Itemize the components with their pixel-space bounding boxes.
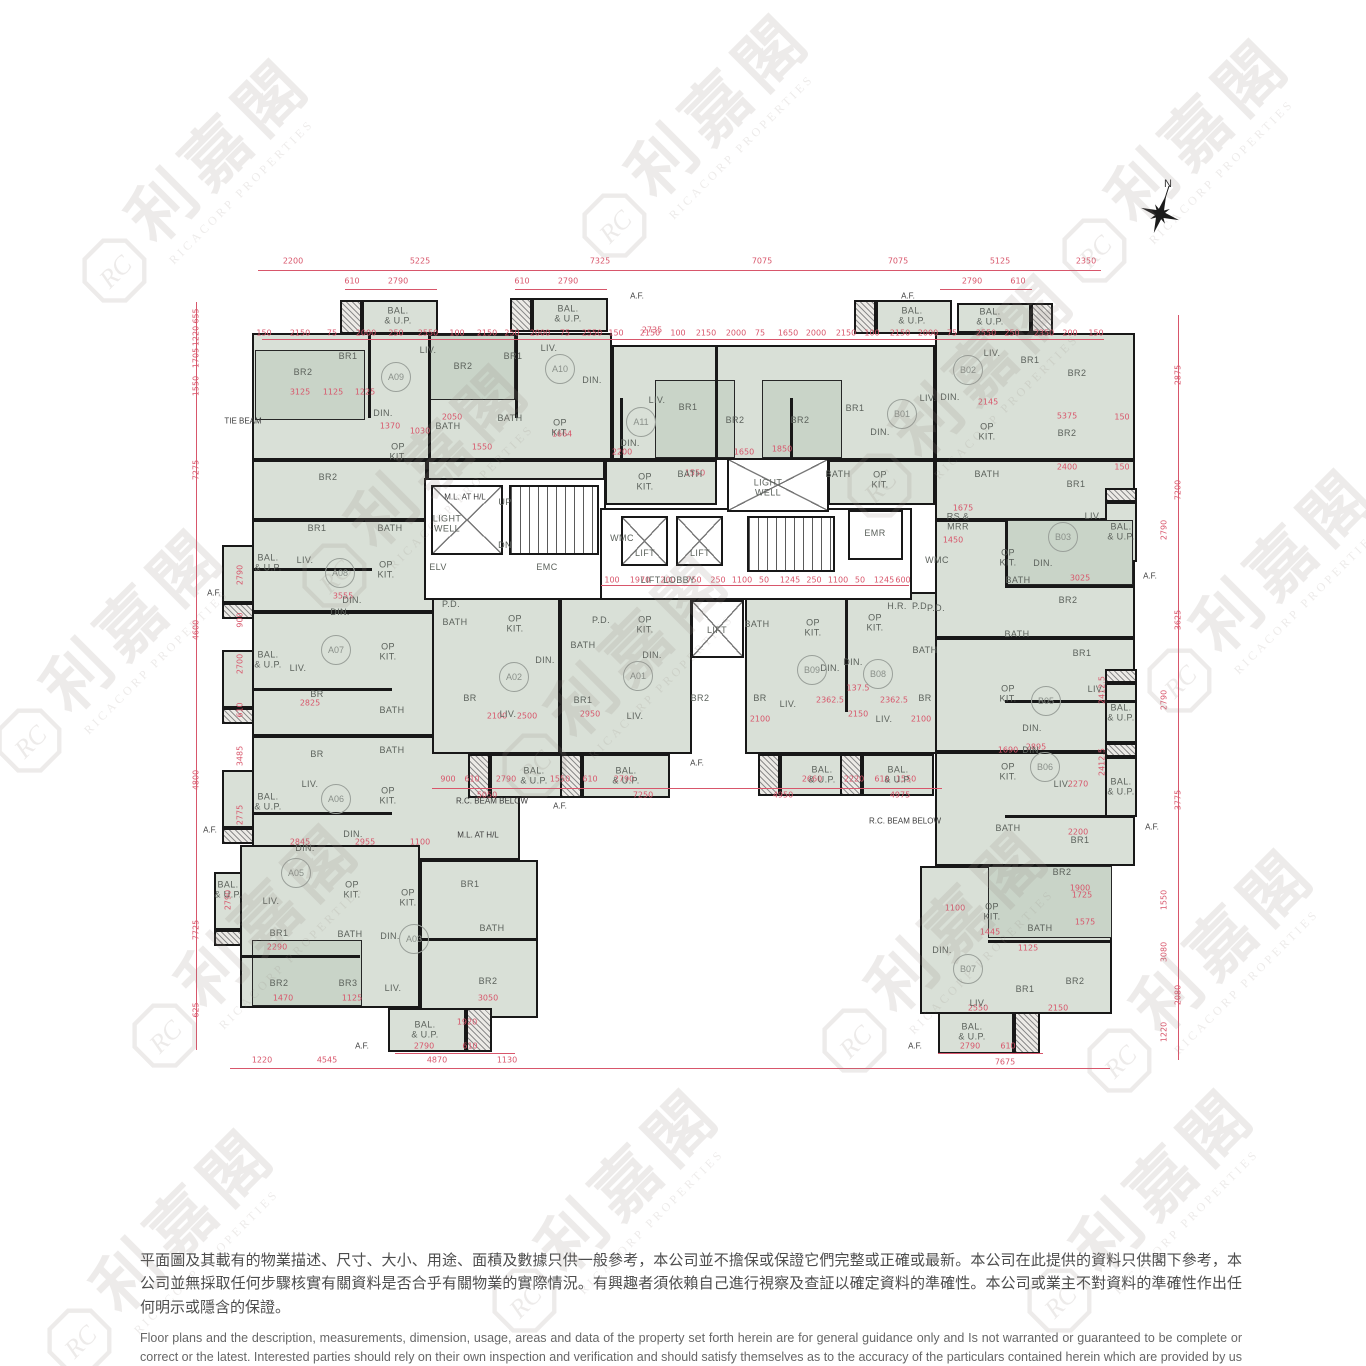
- room-label: EMC: [536, 562, 557, 572]
- room-label: BR2: [454, 361, 473, 371]
- dimension-text: 610: [514, 277, 529, 286]
- room-label: BR: [463, 693, 476, 703]
- dimension-text: 2100: [911, 715, 931, 724]
- dimension-text: 7675: [995, 1058, 1015, 1067]
- dimension-text: 610: [344, 277, 359, 286]
- core-area: [676, 516, 723, 566]
- dimension-text: 1900: [1070, 884, 1090, 893]
- wall-segment: [420, 938, 538, 941]
- room-label: OP KIT.: [999, 684, 1016, 705]
- room-label: LIFT: [690, 548, 710, 558]
- dimension-text: 150: [608, 329, 623, 338]
- dimension-text: 610: [582, 775, 597, 784]
- dimension-text: 625: [192, 1002, 201, 1017]
- room-label: DIN.: [1022, 723, 1042, 733]
- wall-segment: [845, 592, 848, 712]
- room-label: BAL. & U.P.: [958, 1022, 985, 1043]
- room-label: BR1: [1021, 355, 1040, 365]
- room-label: BR: [753, 693, 766, 703]
- room-label: DN: [498, 540, 512, 550]
- dimension-text: 1550: [1160, 890, 1169, 910]
- dimension-text: 610: [464, 775, 479, 784]
- room-label: BATH: [826, 469, 851, 479]
- room-label: BATH: [678, 469, 703, 479]
- room-label: BATH: [378, 523, 403, 533]
- unit-number-label: A06: [321, 784, 351, 814]
- room-block: [430, 335, 515, 400]
- room-label: WMC: [610, 533, 634, 543]
- room-label: EMR: [864, 528, 885, 538]
- room-label: DIN.: [535, 655, 555, 665]
- annotation-label: A.F.: [690, 759, 704, 768]
- balcony-hatch: [214, 930, 242, 946]
- dimension-text: 137.5: [847, 684, 870, 693]
- annotation-label: M.L. AT H/L: [444, 493, 486, 502]
- room-label: BR2: [319, 472, 338, 482]
- annotation-label: A.F.: [901, 292, 915, 301]
- unit-number-label: B08: [863, 659, 893, 689]
- dimension-text: 610: [236, 702, 245, 717]
- unit-number-label: A09: [381, 362, 411, 392]
- room-label: BR2: [726, 415, 745, 425]
- room-label: BR1: [504, 351, 523, 361]
- dimension-text: 250: [806, 576, 821, 585]
- dimension-text: 75: [560, 329, 570, 338]
- dimension-text: 7075: [752, 257, 772, 266]
- dimension-text: 3025: [1070, 574, 1090, 583]
- annotation-label: A.F.: [1143, 572, 1157, 581]
- room-label: OP KIT.: [804, 618, 821, 639]
- dimension-text: 1650: [778, 329, 798, 338]
- dimension-text: 3775: [1174, 790, 1183, 810]
- dimension-text: 2950: [580, 710, 600, 719]
- dimension-text: 2790: [962, 277, 982, 286]
- annotation-label: A.F.: [908, 1042, 922, 1051]
- balcony-hatch: [1105, 488, 1137, 502]
- dimension-line: [262, 339, 1104, 340]
- dimension-text: 2150: [696, 329, 716, 338]
- dimension-text: 4950: [773, 791, 793, 800]
- dimension-text: 5375: [1057, 412, 1077, 421]
- room-label: BAL. & U.P.: [884, 765, 911, 786]
- room-label: LIV.: [984, 348, 1001, 358]
- dimension-text: 2000: [530, 329, 550, 338]
- dimension-text: 1245: [780, 576, 800, 585]
- unit-number-label: B05: [1031, 686, 1061, 716]
- dimension-text: 2145: [978, 398, 998, 407]
- dimension-text: 2700: [236, 654, 245, 674]
- room-label: LIFT LOBBY: [641, 575, 696, 585]
- wall-segment: [988, 940, 1112, 943]
- room-label: BR1: [679, 402, 698, 412]
- dimension-line: [345, 289, 437, 290]
- room-label: P.D.: [442, 599, 460, 609]
- dimension-text: 3050: [478, 994, 498, 1003]
- room-label: LIV.: [263, 896, 280, 906]
- dimension-text: 2790: [388, 277, 408, 286]
- dimension-text: 2550: [582, 329, 602, 338]
- room-label: BATH: [996, 823, 1021, 833]
- dimension-text: 1225: [355, 388, 375, 397]
- north-arrow: N: [1136, 178, 1196, 248]
- room-label: LIV.: [1088, 684, 1105, 694]
- room-label: BATH: [745, 619, 770, 629]
- dimension-text: 2875: [1174, 365, 1183, 385]
- dimension-text: 2790: [414, 1042, 434, 1051]
- room-label: DIN.: [380, 931, 400, 941]
- room-label: DIN.: [295, 843, 315, 853]
- room-label: BATH: [913, 645, 938, 655]
- room-label: BR2: [1068, 368, 1087, 378]
- room-label: LIFT: [707, 625, 727, 635]
- dimension-text: 2220: [844, 775, 864, 784]
- annotation-label: A.F.: [630, 292, 644, 301]
- dimension-text: 1220: [252, 1056, 272, 1065]
- dimension-line: [258, 270, 1101, 271]
- dimension-text: 75: [327, 329, 337, 338]
- unit-number-label: B09: [797, 655, 827, 685]
- room-label: DIN.: [582, 375, 602, 385]
- room-label: BR1: [1073, 648, 1092, 658]
- dimension-text: 100: [670, 329, 685, 338]
- dimension-text: 4545: [317, 1056, 337, 1065]
- dimension-text: 1850: [772, 445, 792, 454]
- room-label: BAL. & U.P.: [214, 880, 241, 901]
- dimension-text: 1690: [998, 746, 1018, 755]
- dimension-text: 2790: [496, 775, 516, 784]
- room-label: BR1: [308, 523, 327, 533]
- dimension-line: [515, 289, 607, 290]
- room-label: UP: [498, 497, 511, 507]
- room-label: DIN.: [870, 427, 890, 437]
- room-label: BAL. & U.P.: [384, 306, 411, 327]
- room-label: BATH: [443, 617, 468, 627]
- annotation-label: TIE BEAM: [224, 417, 261, 426]
- dimension-text: 2790: [236, 565, 245, 585]
- room-label: BAL. & U.P.: [254, 650, 281, 671]
- room-label: LIV.: [302, 779, 319, 789]
- balcony-hatch: [1105, 743, 1137, 757]
- wall-segment: [1005, 585, 1135, 588]
- room-label: BATH: [436, 421, 461, 431]
- dimension-text: 250: [710, 576, 725, 585]
- room-label: BR2: [1053, 867, 1072, 877]
- room-label: BAL. & U.P.: [554, 304, 581, 325]
- room-label: BR2: [270, 978, 289, 988]
- dimension-text: 1575: [1075, 918, 1095, 927]
- room-label: WMC: [925, 555, 949, 565]
- dimension-text: 900: [440, 775, 455, 784]
- dimension-text: 5125: [990, 257, 1010, 266]
- wall-segment: [368, 333, 371, 418]
- dimension-text: 1445: [980, 928, 1000, 937]
- dimension-text: 4600: [192, 620, 201, 640]
- room-label: DIN.: [940, 392, 960, 402]
- dimension-text: 1100: [732, 576, 752, 585]
- room-label: OP KIT.: [999, 762, 1016, 783]
- unit-number-label: B02: [953, 355, 983, 385]
- dimension-text: 50: [759, 576, 769, 585]
- dimension-text: 2000: [918, 329, 938, 338]
- dimension-text: 1100: [410, 838, 430, 847]
- dimension-text: 1920: [457, 1018, 477, 1027]
- balcony-hatch: [1105, 669, 1137, 683]
- room-label: BATH: [1006, 575, 1031, 585]
- room-block: [745, 592, 942, 754]
- dimension-text: 3125: [290, 388, 310, 397]
- dimension-text: 150: [256, 329, 271, 338]
- dimension-text: 2775: [236, 805, 245, 825]
- dimension-text: 1450: [943, 536, 963, 545]
- dimension-text: 4800: [192, 770, 201, 790]
- dimension-text: 1370: [380, 422, 400, 431]
- dimension-text: 1470: [273, 994, 293, 1003]
- balcony-hatch: [222, 828, 254, 844]
- dimension-text: 3080: [1160, 942, 1169, 962]
- unit-number-label: A01: [623, 661, 653, 691]
- room-label: BR1: [1016, 984, 1035, 994]
- dimension-text: 50: [855, 576, 865, 585]
- room-label: LIV.: [1054, 779, 1071, 789]
- room-label: LIV.: [1085, 511, 1102, 521]
- room-label: H.R.: [887, 601, 907, 611]
- dimension-line: [938, 1053, 1043, 1054]
- room-label: BAL. & U.P.: [808, 765, 835, 786]
- room-label: OP KIT.: [999, 548, 1016, 569]
- dimension-text: 2290: [267, 943, 287, 952]
- room-label: OP KIT.: [506, 614, 523, 635]
- dimension-text: 150: [1114, 463, 1129, 472]
- room-label: LIGHT WELL: [754, 478, 783, 499]
- room-label: BAL. & U.P.: [976, 307, 1003, 328]
- dimension-text: 1650: [734, 448, 754, 457]
- room-label: BAL. & U.P.: [1107, 777, 1134, 798]
- dimension-text: 2150: [477, 329, 497, 338]
- room-label: BR2: [1058, 428, 1077, 438]
- room-label: DIN.: [343, 829, 363, 839]
- room-label: BR1: [461, 879, 480, 889]
- room-label: RS & MRR: [947, 512, 970, 533]
- room-label: OP KIT.: [343, 880, 360, 901]
- dimension-text: 2150: [640, 329, 660, 338]
- room-label: BR2: [479, 976, 498, 986]
- dimension-text: 1245: [874, 576, 894, 585]
- room-label: OP KIT.: [636, 472, 653, 493]
- dimension-line: [1178, 315, 1179, 1060]
- unit-number-label: A11: [626, 407, 656, 437]
- dimension-text: 2412.5: [1098, 748, 1107, 776]
- dimension-text: 2100: [750, 715, 770, 724]
- room-label: BATH: [975, 469, 1000, 479]
- dimension-text: 5225: [410, 257, 430, 266]
- room-block: [655, 380, 735, 458]
- dimension-text: 3485: [236, 746, 245, 766]
- dimension-text: 610: [1010, 277, 1025, 286]
- room-label: LIV.: [920, 393, 937, 403]
- room-label: BR: [310, 689, 323, 699]
- room-label: LIV.: [970, 998, 987, 1008]
- room-label: BAL. & U.P.: [254, 792, 281, 813]
- room-label: DIN.: [932, 945, 952, 955]
- unit-number-label: B01: [887, 399, 917, 429]
- dimension-text: 75: [755, 329, 765, 338]
- annotation-label: M.L. AT H/L: [457, 831, 499, 840]
- room-label: BAL. & U.P.: [612, 766, 639, 787]
- unit-number-label: A03: [399, 924, 429, 954]
- room-label: BR2: [791, 415, 810, 425]
- dimension-text: 1550: [550, 775, 570, 784]
- dimension-text: 2150: [836, 329, 856, 338]
- wall-segment: [515, 333, 518, 418]
- disclaimer-chinese: 平面圖及其載有的物業描述、尺寸、大小、用途、面積及數據只供一般參考，本公司並不擔…: [140, 1249, 1242, 1319]
- dimension-text: 2350: [1076, 257, 1096, 266]
- room-label: LIV.: [420, 345, 437, 355]
- unit-number-label: B07: [953, 954, 983, 984]
- dimension-text: 2000: [356, 329, 376, 338]
- dimension-text: 2790: [1160, 520, 1169, 540]
- room-label: LIV.: [290, 663, 307, 673]
- room-label: OP KIT.: [871, 470, 888, 491]
- dimension-text: 600: [895, 576, 910, 585]
- dimension-text: 2200: [612, 448, 632, 457]
- wall-segment: [240, 955, 360, 958]
- dimension-text: 2080: [1174, 985, 1183, 1005]
- room-label: LIV.: [297, 555, 314, 565]
- room-block: [252, 460, 427, 520]
- room-block: [935, 333, 1135, 460]
- room-label: ELV: [429, 562, 447, 572]
- room-label: BATH: [1005, 629, 1030, 639]
- dimension-text: 7725: [192, 920, 201, 940]
- dimension-text: 1100: [828, 576, 848, 585]
- room-label: BR2: [294, 367, 313, 377]
- room-label: LIV.: [385, 983, 402, 993]
- dimension-text: 3625: [1174, 610, 1183, 630]
- room-label: OP KIT.: [978, 422, 995, 443]
- room-label: BR2: [691, 693, 710, 703]
- room-label: BATH: [571, 640, 596, 650]
- room-label: DIN.: [342, 595, 362, 605]
- dimension-text: 2790: [960, 1042, 980, 1051]
- room-label: OP KIT.: [379, 786, 396, 807]
- room-label: BATH: [380, 705, 405, 715]
- disclaimer: 平面圖及其載有的物業描述、尺寸、大小、用途、面積及數據只供一般參考，本公司並不擔…: [140, 1249, 1242, 1366]
- room-label: BR2: [1059, 595, 1078, 605]
- dimension-text: 100: [449, 329, 464, 338]
- dimension-text: 1705: [192, 348, 201, 368]
- dimension-line: [395, 1053, 515, 1054]
- dimension-text: 7250: [633, 791, 653, 800]
- room-label: BR: [918, 693, 931, 703]
- dimension-text: 1100: [945, 904, 965, 913]
- room-label: BR1: [339, 351, 358, 361]
- dimension-text: 1030: [410, 427, 430, 436]
- dimension-text: 250: [388, 329, 403, 338]
- unit-number-label: B06: [1030, 752, 1060, 782]
- core-area: [509, 485, 599, 555]
- dimension-text: 900: [236, 612, 245, 627]
- unit-number-label: A10: [545, 354, 575, 384]
- room-label: BAL. & U.P.: [254, 553, 281, 574]
- room-label: OP KIT.: [377, 560, 394, 581]
- dimension-text: 1220: [192, 326, 201, 346]
- dimension-text: 2000: [726, 329, 746, 338]
- room-label: DIN.: [330, 607, 350, 617]
- room-label: LIFT: [635, 548, 655, 558]
- room-label: DIN.: [620, 438, 640, 448]
- dimension-text: 1550: [472, 443, 492, 452]
- dimension-text: 2362.5: [816, 696, 844, 705]
- dimension-text: 2200: [283, 257, 303, 266]
- dimension-text: 2500: [517, 712, 537, 721]
- room-label: DIN.: [843, 657, 863, 667]
- wall-segment: [1005, 815, 1135, 818]
- dimension-text: 2150: [890, 329, 910, 338]
- room-label: BR3: [339, 978, 358, 988]
- room-label: BAL. & U.P.: [520, 766, 547, 787]
- dimension-text: 250: [1004, 329, 1019, 338]
- room-label: P.D.: [592, 615, 610, 625]
- annotation-label: A.F.: [355, 1042, 369, 1051]
- dimension-text: 1130: [497, 1056, 517, 1065]
- room-label: BATH: [498, 413, 523, 423]
- room-label: BATH: [380, 745, 405, 755]
- unit-number-label: A08: [325, 558, 355, 588]
- dimension-text: 150: [1088, 329, 1103, 338]
- room-label: BAL. & U.P.: [1107, 703, 1134, 724]
- dimension-text: 4975: [890, 791, 910, 800]
- annotation-label: A.F.: [553, 802, 567, 811]
- room-block: [605, 460, 717, 505]
- dimension-text: 7075: [888, 257, 908, 266]
- annotation-label: R.C. BEAM BELOW: [869, 817, 941, 826]
- dimension-text: 2350: [1034, 329, 1054, 338]
- dimension-text: 2550: [976, 329, 996, 338]
- dimension-text: 7275: [192, 460, 201, 480]
- floor-plan-page: 2200522573257075707551252350610279061027…: [0, 0, 1366, 1366]
- annotation-label: A.F.: [1145, 823, 1159, 832]
- dimension-text: 1125: [342, 994, 362, 1003]
- dimension-text: 200: [1062, 329, 1077, 338]
- room-label: LIV.: [876, 714, 893, 724]
- room-label: BAL. & U.P.: [411, 1020, 438, 1041]
- disclaimer-english: Floor plans and the description, measure…: [140, 1329, 1242, 1366]
- annotation-label: A.F.: [203, 826, 217, 835]
- dimension-text: 1550: [192, 376, 201, 396]
- dimension-text: 1125: [323, 388, 343, 397]
- dimension-text: 2362.5: [880, 696, 908, 705]
- unit-number-label: A07: [321, 635, 351, 665]
- room-label: BR1: [574, 695, 593, 705]
- room-label: BATH: [480, 923, 505, 933]
- room-label: BATH: [1028, 923, 1053, 933]
- dimension-text: 2790: [558, 277, 578, 286]
- room-label: BR1: [270, 928, 289, 938]
- dimension-text: 2000: [806, 329, 826, 338]
- room-label: LIV.: [500, 709, 517, 719]
- dimension-text: 150: [1114, 413, 1129, 422]
- room-label: BR2: [1066, 976, 1085, 986]
- room-label: DIN.: [373, 408, 393, 418]
- dimension-text: 7325: [590, 257, 610, 266]
- room-label: OP KIT.: [551, 418, 568, 439]
- room-label: DIN.: [1033, 558, 1053, 568]
- dimension-text: 250: [504, 329, 519, 338]
- room-label: LIGHT WELL: [433, 514, 462, 535]
- dimension-text: 610: [1000, 1042, 1015, 1051]
- room-label: OP KIT.: [389, 442, 406, 463]
- room-label: P.D.: [927, 603, 945, 613]
